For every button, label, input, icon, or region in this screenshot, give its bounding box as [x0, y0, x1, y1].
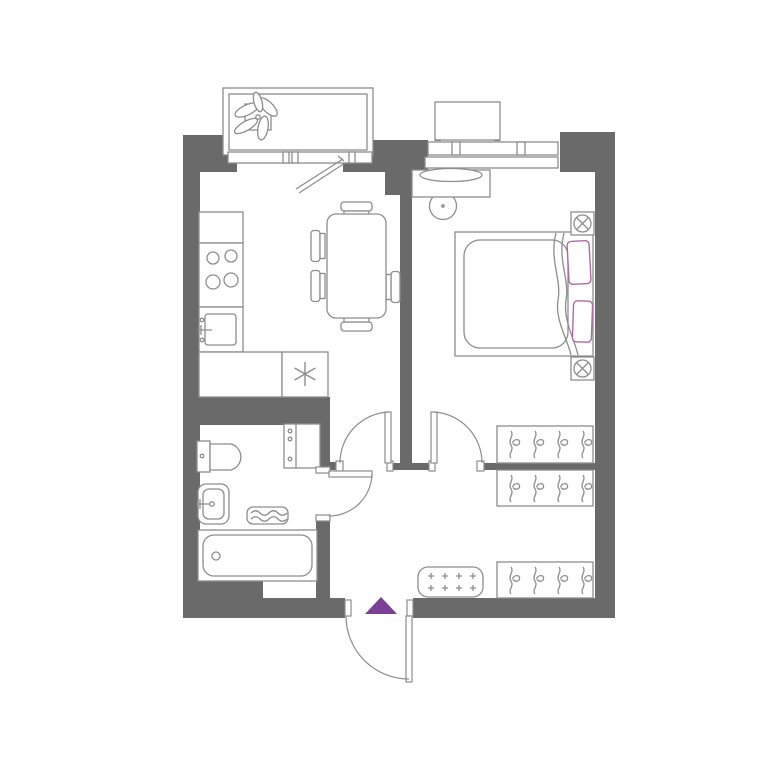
dining-table	[327, 214, 386, 318]
wall-between-doors	[388, 463, 434, 470]
living-room-door	[336, 412, 393, 471]
wall-bottom-right	[413, 598, 615, 618]
wall-right	[595, 132, 615, 618]
wall-bathroom-south-block	[183, 580, 263, 618]
vanity-mirror	[420, 169, 482, 182]
door-swing-arc	[329, 474, 372, 516]
hallway-wardrobe-upper	[497, 470, 593, 506]
bathroom	[196, 424, 320, 581]
chair	[311, 271, 325, 302]
bedroom-door	[429, 412, 484, 471]
door-swing-arc	[434, 412, 482, 463]
washbasin	[196, 484, 229, 524]
chair	[341, 317, 372, 331]
burner	[206, 275, 220, 289]
bath-mat	[247, 507, 288, 524]
toilet	[197, 441, 241, 472]
door-leaf	[406, 616, 412, 682]
window-band-outer	[428, 142, 558, 155]
hallway-wardrobe-lower	[497, 562, 593, 598]
burner	[224, 273, 238, 287]
kitchen-sink	[197, 307, 243, 352]
drain	[212, 552, 220, 560]
balcony	[223, 88, 373, 193]
countertop	[199, 212, 243, 243]
balcony-window	[228, 152, 372, 163]
window-mullion	[452, 142, 460, 155]
door-leaf	[431, 412, 437, 463]
wall-livingroom-south	[183, 397, 330, 425]
bedside-lamp-icon	[571, 212, 594, 235]
cooktop	[199, 243, 243, 307]
tall-cabinet	[284, 424, 320, 468]
window-sill	[425, 157, 558, 168]
floor-plan	[0, 0, 768, 768]
wall-bedroom-south-thin	[482, 463, 595, 470]
bedroom-furniture	[412, 169, 594, 464]
ac-platform	[435, 102, 500, 140]
lower-counter	[199, 352, 282, 397]
pillow	[567, 240, 591, 284]
bathtub	[198, 530, 317, 581]
door-swing-arc	[346, 616, 409, 679]
chair	[386, 272, 400, 303]
door-leaf	[329, 471, 372, 477]
hallway-furniture	[418, 470, 593, 598]
bedroom-wardrobe	[497, 426, 593, 463]
bathroom-door	[316, 467, 372, 521]
wall-center-vertical	[400, 172, 412, 470]
chair	[311, 231, 325, 262]
window-mullion	[517, 142, 525, 155]
burner	[207, 252, 219, 264]
door-leaf	[385, 412, 391, 463]
kitchen	[197, 212, 328, 397]
door-swing-arc	[340, 412, 388, 463]
pillow	[572, 301, 592, 343]
bedside-lamp-icon	[571, 357, 594, 380]
entrance-marker	[365, 597, 397, 614]
dining-set	[311, 202, 400, 331]
refrigerator	[282, 352, 328, 397]
burner	[225, 250, 237, 262]
floor-plan-drawing	[0, 0, 768, 768]
shoe-bench	[418, 567, 483, 597]
bedroom-window	[425, 102, 558, 168]
